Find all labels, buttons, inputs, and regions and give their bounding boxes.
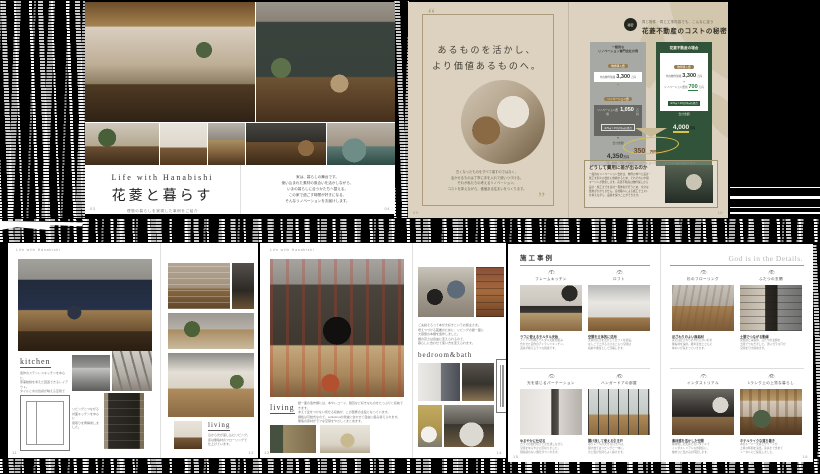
secret-badge: 秘密 [624, 18, 637, 31]
case-photo-8 [740, 389, 802, 435]
leaf-icon [615, 269, 623, 276]
total-unit: 万円 [689, 126, 695, 130]
presentation-canvas: Life with Hanabishi 花菱と暮らす 理想の暮らしを実現した事例… [0, 0, 820, 474]
static-noise-gap [394, 0, 409, 238]
page-fold [160, 243, 161, 458]
cover-title-jp: 花菱と暮らす [85, 185, 240, 205]
tag-purchase: 物件購入費 [608, 64, 627, 68]
case-photo-3 [672, 285, 734, 331]
spread-cases: 施工事例 God is in the Details. 1. フレームキッチン … [508, 244, 813, 462]
leaf-icon [547, 373, 555, 380]
header-rule [670, 265, 804, 266]
tag-purchase: 物件購入費 [674, 65, 693, 69]
photo-white-room [160, 123, 207, 165]
intro-line: そんなリノベーションをお届けします。 [250, 198, 385, 204]
case-photo-6 [588, 389, 650, 435]
floor-plan-sliver [496, 359, 506, 413]
case-line: 収納や書斎として活躍します。 [588, 347, 650, 351]
case-item-4: 4. ふたつの玄関 土間でつながる動線 家族用と来客用、ふたつの玄関を 土間でつ… [740, 270, 802, 351]
headline-line: より価値あるものへ。 [422, 58, 552, 74]
page-number: 12 [249, 450, 254, 455]
row-value: 700 [688, 84, 697, 91]
case-line: 道具が映えるラフな質感です。 [520, 347, 582, 351]
living-caption: 窓から光が差し込むリビング。 床は無垢材のフローリングで 仕上げています。 [208, 433, 254, 447]
caption-line: 窓から光が差し込むリビング。 [208, 433, 254, 438]
photo-workshop [665, 165, 713, 203]
photo-dark-hallway [246, 123, 326, 165]
page-number: 14 [497, 450, 502, 455]
case-title: 光を感じるパーテーション [520, 381, 582, 386]
photo-green-door [270, 425, 316, 453]
quote-close-icon: ” [538, 194, 545, 204]
cases-motto: God is in the Details. [668, 254, 803, 263]
page-fold [568, 2, 569, 218]
caption-line: リビングとつながる [72, 407, 100, 412]
living-label: living [270, 403, 295, 414]
photo-pendant-lamp [320, 425, 370, 453]
photo-shelf-plant [168, 313, 254, 349]
leaf-icon [699, 373, 707, 380]
row-unit: 万円 [699, 85, 704, 89]
kitchen-label: kitchen [20, 357, 51, 368]
case-line: 閉塞感のない個室がつくれます。 [520, 451, 582, 455]
cost-title: 花菱不動産のコストの秘密 [642, 25, 727, 35]
leaf-icon [615, 373, 623, 380]
tag-renovation: リノベーション費 [604, 97, 631, 101]
reason-line: を抑えながら、品質を保つことができます。 [589, 194, 661, 198]
case-line: 空間を引き締めます。 [740, 347, 802, 351]
card-title: 花菱不動産の場合 [659, 46, 709, 51]
photo-couple-shelf [418, 267, 474, 317]
case-title: フレームキッチン [520, 277, 582, 282]
row-divider [670, 368, 804, 369]
cover-subtitle: 理想の暮らしを実現した事例をご紹介 [85, 209, 240, 214]
cover-intro-paragraph: 家は、暮らしの舞台です。 使い込まれた素材の風合いを活かしながら、 いまの暮らし… [250, 174, 385, 204]
row-value: 1,050 [620, 107, 634, 113]
case-item-5: 5. 光を感じるパーテーション ゆるやかに仕切る ガラスの間仕切りで光を通しなが… [520, 374, 582, 455]
case-title: 1ランク上の上質な暮らし [740, 381, 802, 386]
living-label: living [208, 421, 230, 431]
episode-paragraph: ご夫婦そろって本が大好きというお施主さま。 増えつづける蔵書のために、リビングの… [418, 323, 502, 346]
caption-line: 家事動線を考えた回遊できるレイアウト。 [20, 380, 70, 389]
leaf-icon [767, 269, 775, 276]
case-item-8: 8. 1ランク上の上質な暮らし ホテルライクな落ち着き 木のルーバー天井とグリー… [740, 374, 802, 455]
case-photo-7 [672, 389, 734, 435]
bedroom-bath-label: bedroom&bath [418, 351, 472, 360]
row-label: リノベーション費用 [596, 108, 619, 116]
cases-title: 施工事例 [520, 252, 554, 262]
case-line: 無骨さと温かみが同居します。 [672, 451, 734, 455]
row-label: 中古物件価格 [600, 75, 616, 79]
spread-cover: Life with Hanabishi 花菱と暮らす 理想の暮らしを実現した事例… [85, 2, 395, 214]
case-line: 光と風が気持ちよく抜けます。 [588, 451, 650, 455]
page-fold [412, 243, 413, 458]
page-number: 04 [385, 206, 390, 211]
total-value: 4,000 [673, 124, 689, 133]
row-label: 中古物件価格 [666, 74, 682, 78]
case-title: 杉のフローリング [672, 277, 734, 282]
photo-dark-door [104, 393, 144, 449]
plan-caption: リビングとつながる 対面キッチンを中心に 間取りを再構成しました。 [72, 407, 100, 430]
funnel-arrow [635, 128, 667, 137]
row-unit: 万円 [635, 108, 640, 116]
caption-line: 間取りを再構成しました。 [72, 421, 100, 430]
photo-planning-desk [461, 80, 545, 164]
photo-brick-desk [168, 263, 230, 309]
case-item-2: 2. ロフト 空間を立体的に活用 天井の高さを活かしてロフトを新設。 はしごで上… [588, 270, 650, 351]
leaf-icon [699, 269, 707, 276]
floor-plan [20, 395, 70, 451]
reason-title: どうして費用に差が出るのか [589, 165, 661, 171]
photo-kitchen-main [18, 259, 152, 351]
case-photo-4 [740, 285, 802, 331]
page-fold [240, 165, 241, 214]
reno-note: ※70㎡ × 10万円/㎡の場合 [668, 101, 699, 106]
headline-line: あるものを活かし、 [422, 42, 552, 58]
photo-living-detail [174, 421, 202, 449]
caption-line: 造作のステンレスキッチンを中心に、 [20, 371, 70, 380]
case-title: ロフト [588, 277, 650, 282]
case-item-6: 6. ハンガードアの部屋 開け放して使える引き戸 吊りレールの大きな引き戸は、 … [588, 374, 650, 455]
case-title: ハンガードアの部屋 [588, 381, 650, 386]
spread-kitchen: Life with Hanabishi kitchen 造作のステンレスキッチン… [8, 243, 258, 458]
running-header: Life with Hanabishi [16, 248, 61, 252]
case-title: インダストリアル [672, 381, 734, 386]
header-rule [520, 265, 650, 266]
photo-plant-corner [85, 123, 159, 165]
quote-headline: あるものを活かし、 より価値あるものへ。 [422, 42, 552, 74]
leaf-icon [767, 373, 775, 380]
case-item-1: 1. フレームキッチン ラフに使えるモルタル天板 アイアンの脚とモルタル天板を組… [520, 270, 582, 351]
photo-toilet [418, 405, 442, 447]
page-number: 11 [12, 450, 17, 455]
photo-living-room [168, 353, 254, 417]
living-paragraph: 壁一面の造作棚には、本やレコード、雑貨など好きなものをたっぷりと収納できます。 … [298, 401, 404, 424]
case-photo-5 [520, 389, 582, 435]
photo-kitchen-detail-1 [72, 355, 110, 391]
static-noise-left [0, 0, 85, 238]
static-noise-right [730, 0, 820, 240]
reno-note: ※70㎡ × 15万円/㎡の場合 [601, 124, 634, 131]
photo-vanity [208, 123, 245, 165]
quote-line: コストを抑えながら、価値ある住まいをつくります。 [426, 187, 548, 193]
photo-kitchen-detail-2 [112, 351, 152, 391]
caption-line: 対面キッチンを中心に [72, 412, 100, 421]
quote-body: 古くなったものをすべて壊すのではなく、 活かせるものは丁寧に手を入れて使いつづけ… [426, 170, 548, 192]
row-value: 3,300 [616, 74, 630, 80]
row-unit: 万円 [631, 75, 636, 79]
page-number: 13 [264, 450, 269, 455]
case-item-3: 3. 杉のフローリング 足ざわりのよい無垢材 床には足ざわりのやわらかい杉の 無… [672, 270, 734, 351]
case-photo-2 [588, 285, 650, 331]
caption-line: 壁一面の造作棚には、本やレコード、雑貨など好きなものをたっぷりと収納できます。 [298, 401, 404, 410]
caption-line: 無垢の床材がラフな空間をやさしくまとめます。 [298, 419, 404, 424]
photo-kitchen-living [85, 2, 255, 122]
photo-bedroom [444, 405, 494, 447]
static-noise-midband [0, 218, 820, 243]
page-number: 15 [513, 454, 518, 459]
caption-line: 暮らしに合わせて使い方を変えられます。 [418, 341, 502, 346]
photo-bathroom [418, 363, 460, 401]
page-number: 16 [803, 454, 808, 459]
spread-cost: “ ” あるものを活かし、 より価値あるものへ。 古くなったものをすべて壊すので… [408, 2, 728, 218]
photo-bookshelf-detail [476, 267, 504, 317]
cost-eyebrow: 同じ物件・同じ工事内容でも、こんなに違う [642, 19, 714, 24]
caption-line: 仕上げています。 [208, 442, 254, 447]
row-unit: 万円 [697, 74, 702, 78]
leaf-icon [547, 269, 555, 276]
page-number: 03 [90, 206, 95, 211]
page-number: 10 [718, 210, 723, 215]
reason-box: どうして費用に差が出るのか 一般的なリノベーション会社は、物件の仲介と設計・ 施… [584, 160, 718, 208]
page-number: 09 [413, 210, 418, 215]
row-divider [520, 368, 650, 369]
row-label: リノベーション費用 [664, 85, 687, 89]
case-title: ふたつの玄関 [740, 277, 802, 282]
photo-closet [462, 363, 494, 401]
photo-dark-tile-living [256, 2, 395, 122]
photo-teal-sofa [327, 123, 395, 165]
photo-shelf-detail [232, 263, 254, 309]
quote-open-icon: “ [428, 10, 435, 20]
page-fold [660, 244, 661, 462]
case-line: トータルにご提案しました。 [740, 451, 802, 455]
spread-living: Life with Hanabishi living 壁一面の造作棚には、本やレ… [260, 243, 506, 458]
case-item-7: 7. インダストリアル 素材感を活かした空間 躯体現しの天井と黒いタイルで イン… [672, 374, 734, 455]
running-header: Life with Hanabishi [270, 248, 315, 252]
photo-tv-bookwall [270, 259, 404, 397]
case-line: 味わいが深まっていきます。 [672, 347, 734, 351]
cover-title-en: Life with Hanabishi [85, 173, 240, 182]
case-photo-1 [520, 285, 582, 331]
